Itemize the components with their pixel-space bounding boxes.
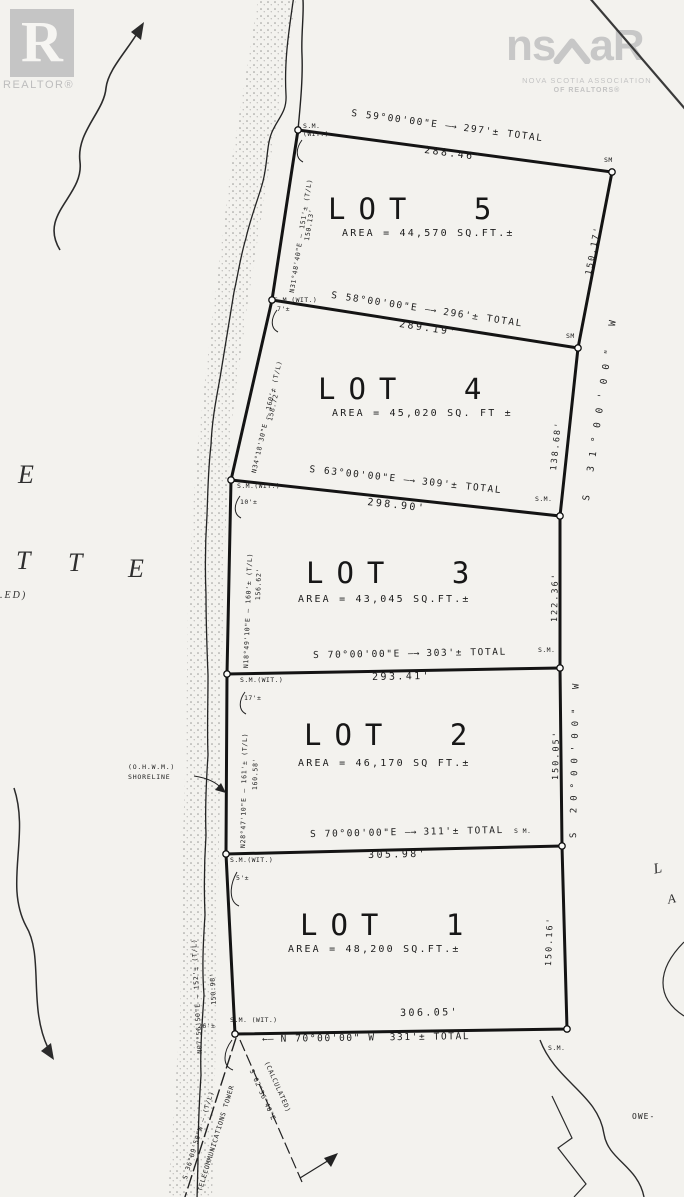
lot5-north-bearing-label: S 59°00'00"E—→297'± TOTAL [351,108,545,144]
lot2-east-measured: 150.05' [551,730,562,780]
lot3-nw-monument-label: S.M.(WIT.) [237,482,280,490]
lot4-nw-monument-label: S.M.(WIT.) [274,296,317,304]
lot5-east-measured: 150.17' [584,225,603,276]
lot3-bearing: S 63°00'00"E [309,464,398,485]
lot3-nw-offset: 10'± [240,498,257,506]
south-right-monument-label: S.M. [548,1044,565,1052]
lot4-total: 296'± TOTAL [442,307,523,330]
shoreline-label-1: (O.H.W.M.) [128,763,175,771]
lot5-bearing: S 59°00'00"E [351,108,440,130]
lot2-total: 303'± TOTAL [426,647,507,659]
lot1-west-bearing: N07°56'50"E — 152'± (T/L) [190,938,204,1054]
lot4-area: AREA = 45,020 SQ. FT ± [332,408,513,419]
margin-letter-t2: T [68,548,82,578]
lot2-bearing: S 70°00'00"E [313,648,401,661]
arrow-right-icon: —→ [424,304,437,317]
arrow-right-icon: —→ [445,120,458,132]
south-measured: 306.05' [400,1007,459,1019]
lot2-west-bearing: N28°47'10"E — 161'± (T/L) [239,733,249,848]
lot3-east-measured: 122.36' [550,572,561,622]
lot1-nw-offset: 5'± [236,874,249,882]
arrow-right-icon: —→ [403,474,416,486]
lot1-nw-monument-label: S.M.(WIT.) [230,856,273,864]
lot4-nw-offset: 7'± [277,305,290,313]
lot2-nw-offset: 17'± [244,694,261,702]
lot2-nw-monument-label: S.M.(WIT.) [240,676,283,684]
arrow-right-icon: —→ [405,827,417,838]
lot4-ne-monument-label: SM [566,332,575,340]
lot5-nw-monument-label: S.M. (WIT.) [303,122,329,139]
south-bearing: N 70°00'00" W [280,1032,375,1044]
east-bearing-lots4-5: S 31°00'00" W [581,311,620,502]
south-left-monument-label: S.M. (WIT.) [230,1016,277,1024]
lot5-area: AREA = 44,570 SQ.FT.± [342,228,515,239]
lot3-north-bearing-label: S 63°00'00"E—→309'± TOTAL [309,464,503,496]
tower-name-label: TELECOMMUNICATIONS TOWER [196,1084,236,1192]
lot5-nw-wit: (WIT.) [303,130,329,138]
lot1-north-bearing-label: S 70°00'00"E—→311'± TOTAL [310,825,504,840]
lot5-ne-monument-label: SM [604,156,613,164]
lot2-west-measured: 160.58' [251,758,260,790]
margin-letter-e2: E [128,554,144,584]
lot4-title: LOT 4 [318,372,494,406]
lot5-nw-sm: S.M. [303,122,329,130]
lot1-ne-monument-label: S M. [514,827,531,835]
margin-letter-t1: T [16,546,30,576]
lot2-north-measured: 293.41' [372,671,431,683]
survey-plan-page: R REALTOR® ns aR NOVA SCOTIA ASSOCIATION… [0,0,684,1197]
lot5-title: LOT 5 [328,192,504,226]
lot4-bearing: S 58°00'00"E [330,290,419,314]
lot4-north-measured: 289.19' [398,319,458,339]
lot3-total: 309'± TOTAL [421,476,502,496]
south-bearing-label: ←—N 70°00'00" W331'± TOTAL [262,1031,470,1045]
south-left-offset: 26'± [198,1022,215,1030]
margin-letter-a: A [666,890,677,907]
lot2-east-bearing: S 20°00'00" W [569,677,582,839]
shoreline-label-2: SHORELINE [128,773,170,781]
lot1-east-measured: 150.16' [544,916,556,966]
margin-text-ed: .ED) [0,590,27,601]
lot1-west-measured: 150.98' [208,972,218,1005]
lot3-title: LOT 3 [306,556,482,590]
south-total: 331'± TOTAL [390,1031,471,1043]
lot3-area: AREA = 43,045 SQ.FT.± [298,594,471,605]
lot5-north-measured: 288.46' [424,145,484,164]
lot5-total: 297'± TOTAL [463,123,544,144]
margin-letter-e1: E [18,460,34,490]
arrow-left-icon: ←— [262,1034,274,1045]
lot1-total: 311'± TOTAL [423,825,504,838]
lot2-north-bearing-label: S 70°00'00"E—→303'± TOTAL [313,647,507,661]
margin-text-owe: OWE- [632,1112,655,1121]
lot2-area: AREA = 46,170 SQ FT.± [298,758,471,769]
arrow-right-icon: —→ [408,648,420,659]
lot2-ne-monument-label: S.M. [538,646,555,654]
lot4-east-measured: 138.68' [549,420,564,471]
lot1-area: AREA = 48,200 SQ.FT.± [288,944,461,955]
lot3-west-measured: 156.62' [254,568,263,601]
margin-letter-l: L [652,860,664,878]
lot2-title: LOT 2 [304,718,480,752]
lot3-north-measured: 298.90' [367,497,427,514]
lot1-title: LOT 1 [300,908,476,942]
lot3-ne-monument-label: S.M. [535,495,552,503]
lot3-west-bearing: N18°49'10"E — 160'± (T/L) [242,553,254,669]
lot1-north-measured: 305.98' [368,849,427,861]
lot1-bearing: S 70°00'00"E [310,827,398,840]
